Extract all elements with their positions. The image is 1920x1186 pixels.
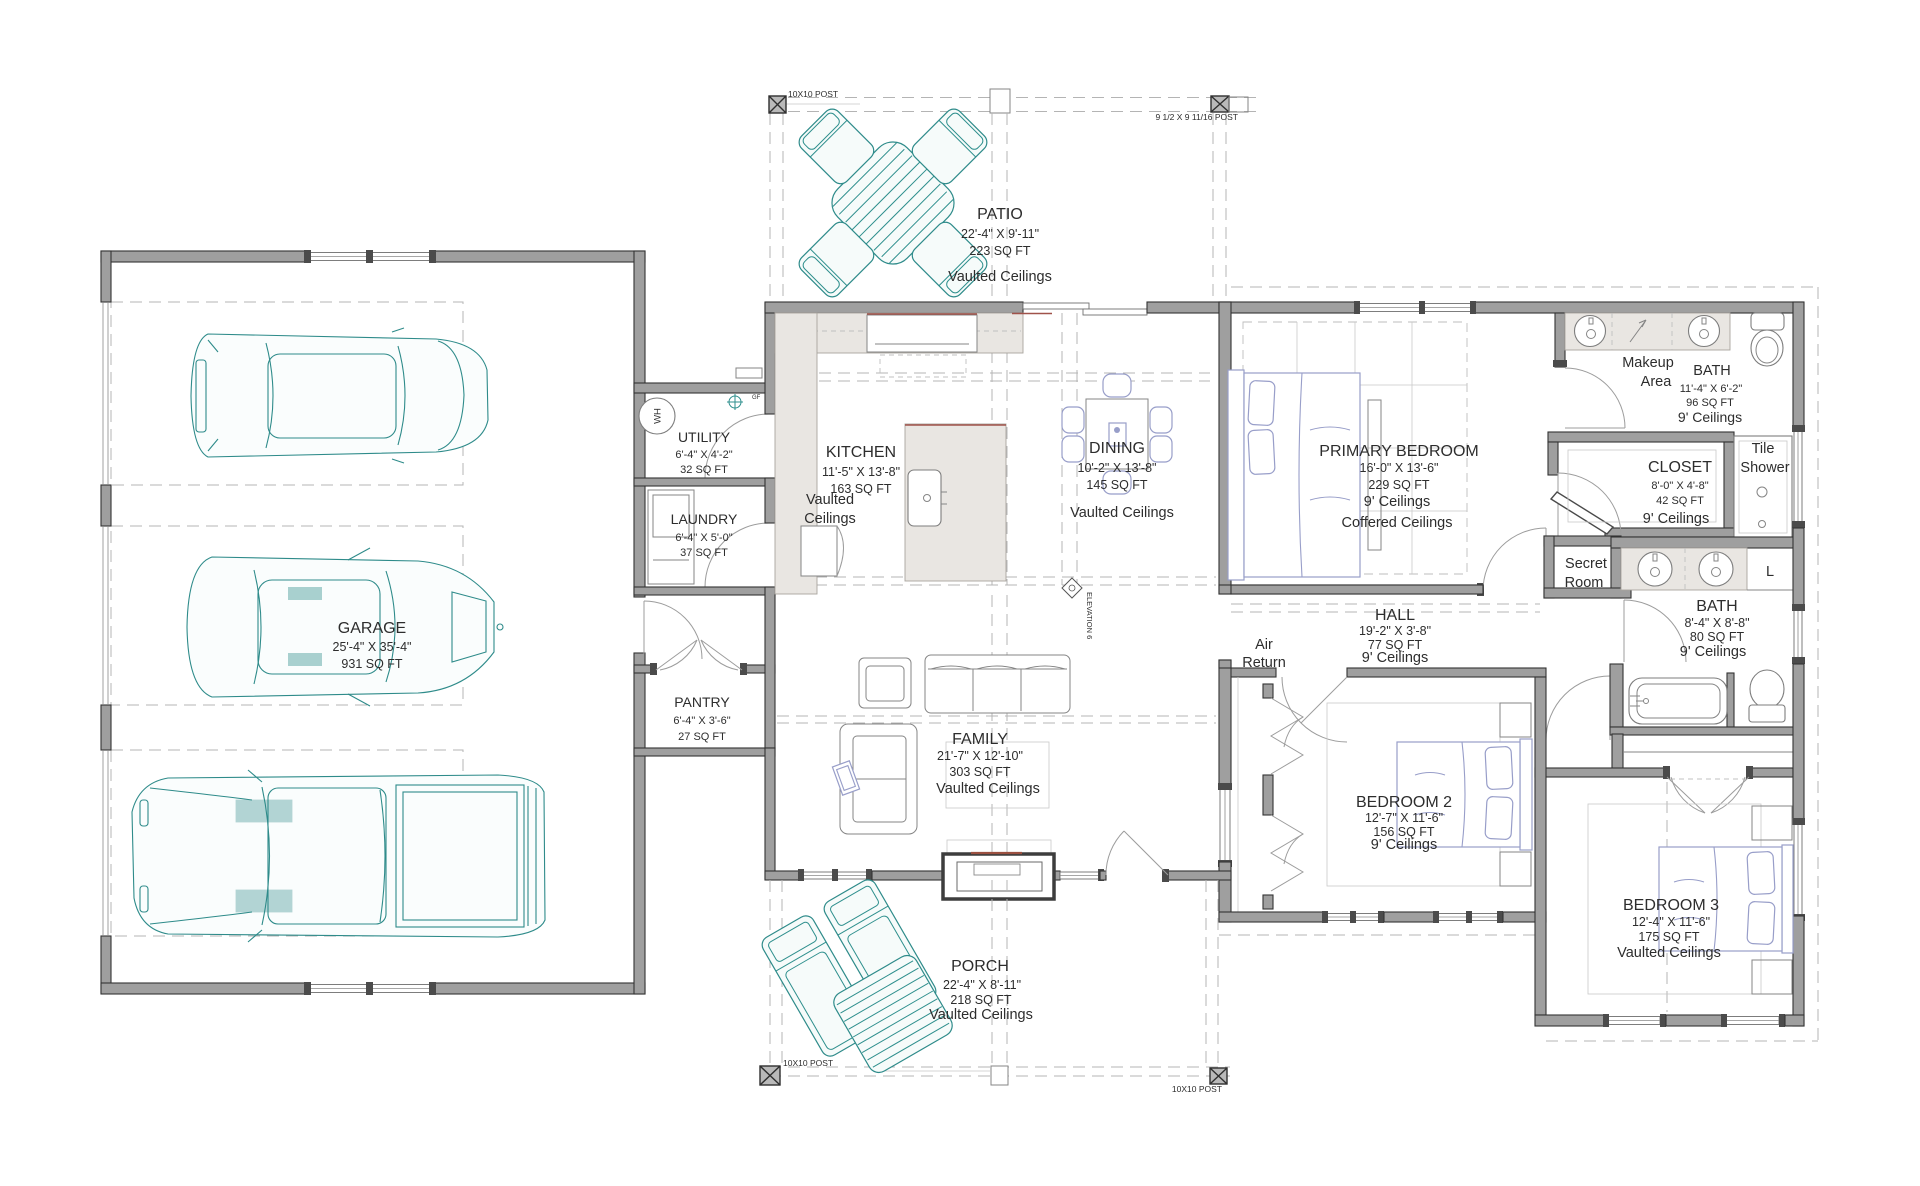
svg-text:DINING: DINING bbox=[1089, 440, 1145, 457]
svg-text:9' Ceilings: 9' Ceilings bbox=[1364, 494, 1430, 510]
svg-text:96 SQ FT: 96 SQ FT bbox=[1686, 397, 1734, 409]
svg-text:KITCHEN: KITCHEN bbox=[826, 444, 896, 461]
svg-text:Tile: Tile bbox=[1752, 441, 1775, 457]
svg-text:223 SQ FT: 223 SQ FT bbox=[969, 244, 1030, 258]
svg-text:GF: GF bbox=[752, 395, 761, 401]
svg-text:25'-4" X 35'-4": 25'-4" X 35'-4" bbox=[333, 640, 412, 654]
svg-text:Vaulted Ceilings: Vaulted Ceilings bbox=[936, 781, 1040, 797]
svg-text:Ceilings: Ceilings bbox=[804, 511, 856, 527]
svg-text:16'-0" X 13'-6": 16'-0" X 13'-6" bbox=[1360, 461, 1439, 475]
svg-text:PRIMARY BEDROOM: PRIMARY BEDROOM bbox=[1319, 443, 1478, 460]
svg-text:9' Ceilings: 9' Ceilings bbox=[1362, 650, 1428, 666]
svg-text:9' Ceilings: 9' Ceilings bbox=[1678, 409, 1742, 425]
svg-text:10X10 POST: 10X10 POST bbox=[1172, 1084, 1222, 1094]
svg-text:10X10 POST: 10X10 POST bbox=[783, 1058, 833, 1068]
svg-text:6'-4" X 5'-0": 6'-4" X 5'-0" bbox=[675, 532, 732, 544]
svg-text:ELEVATION 6: ELEVATION 6 bbox=[1085, 592, 1094, 639]
svg-text:12'-4" X 11'-6": 12'-4" X 11'-6" bbox=[1632, 915, 1710, 929]
svg-text:22'-4" X 8'-11": 22'-4" X 8'-11" bbox=[943, 978, 1021, 992]
svg-text:229 SQ FT: 229 SQ FT bbox=[1368, 478, 1429, 492]
svg-text:Area: Area bbox=[1641, 374, 1673, 390]
svg-text:145 SQ FT: 145 SQ FT bbox=[1086, 478, 1147, 492]
svg-text:GARAGE: GARAGE bbox=[338, 620, 406, 637]
svg-text:Vaulted Ceilings: Vaulted Ceilings bbox=[1617, 945, 1721, 961]
svg-text:Air: Air bbox=[1255, 637, 1273, 653]
svg-text:931 SQ FT: 931 SQ FT bbox=[341, 657, 402, 671]
svg-text:11'-5" X 13'-8": 11'-5" X 13'-8" bbox=[822, 465, 900, 479]
svg-text:42 SQ FT: 42 SQ FT bbox=[1656, 495, 1704, 507]
svg-text:6'-4" X 3'-6": 6'-4" X 3'-6" bbox=[673, 715, 730, 727]
svg-text:19'-2" X 3'-8": 19'-2" X 3'-8" bbox=[1359, 624, 1431, 638]
svg-text:303 SQ FT: 303 SQ FT bbox=[949, 765, 1010, 779]
svg-text:10X10 POST: 10X10 POST bbox=[788, 89, 838, 99]
svg-text:Coffered Ceilings: Coffered Ceilings bbox=[1342, 515, 1453, 531]
svg-text:PORCH: PORCH bbox=[951, 958, 1009, 975]
svg-text:21'-7" X 12'-10": 21'-7" X 12'-10" bbox=[937, 749, 1023, 763]
svg-text:PATIO: PATIO bbox=[977, 206, 1023, 223]
svg-text:Return: Return bbox=[1242, 655, 1286, 671]
svg-text:80 SQ FT: 80 SQ FT bbox=[1690, 630, 1745, 644]
svg-text:9' Ceilings: 9' Ceilings bbox=[1371, 837, 1437, 853]
svg-text:Room: Room bbox=[1565, 575, 1604, 591]
svg-text:Makeup: Makeup bbox=[1622, 355, 1674, 371]
svg-text:BATH: BATH bbox=[1693, 363, 1731, 379]
svg-text:Shower: Shower bbox=[1740, 460, 1789, 476]
svg-text:L: L bbox=[1766, 564, 1774, 580]
svg-text:27 SQ FT: 27 SQ FT bbox=[678, 731, 726, 743]
svg-text:Secret: Secret bbox=[1565, 556, 1607, 572]
svg-text:22'-4" X 9'-11": 22'-4" X 9'-11" bbox=[961, 227, 1039, 241]
svg-text:8'-4" X 8'-8": 8'-4" X 8'-8" bbox=[1684, 616, 1749, 630]
svg-text:218 SQ FT: 218 SQ FT bbox=[950, 993, 1011, 1007]
svg-text:UTILITY: UTILITY bbox=[678, 429, 731, 445]
svg-text:9' Ceilings: 9' Ceilings bbox=[1643, 511, 1709, 527]
svg-text:8'-0" X 4'-8": 8'-0" X 4'-8" bbox=[1651, 480, 1708, 492]
svg-text:Vaulted: Vaulted bbox=[806, 492, 854, 508]
svg-text:BATH: BATH bbox=[1696, 598, 1737, 615]
svg-text:9 1/2 X 9 11/16 POST: 9 1/2 X 9 11/16 POST bbox=[1155, 112, 1238, 122]
svg-text:9' Ceilings: 9' Ceilings bbox=[1680, 644, 1746, 660]
svg-text:LAUNDRY: LAUNDRY bbox=[671, 511, 738, 527]
svg-text:WH: WH bbox=[653, 408, 664, 424]
svg-text:HALL: HALL bbox=[1375, 607, 1415, 624]
svg-text:12'-7" X 11'-6": 12'-7" X 11'-6" bbox=[1365, 811, 1443, 825]
svg-text:BEDROOM 3: BEDROOM 3 bbox=[1623, 897, 1719, 914]
svg-text:175 SQ FT: 175 SQ FT bbox=[1638, 930, 1699, 944]
svg-text:Vaulted Ceilings: Vaulted Ceilings bbox=[948, 269, 1052, 285]
svg-text:10'-2" X 13'-8": 10'-2" X 13'-8" bbox=[1078, 461, 1157, 475]
svg-text:FAMILY: FAMILY bbox=[952, 731, 1008, 748]
svg-text:32 SQ FT: 32 SQ FT bbox=[680, 464, 728, 476]
svg-text:6'-4" X 4'-2": 6'-4" X 4'-2" bbox=[675, 449, 732, 461]
svg-text:BEDROOM 2: BEDROOM 2 bbox=[1356, 794, 1452, 811]
svg-text:PANTRY: PANTRY bbox=[674, 694, 730, 710]
svg-text:Vaulted Ceilings: Vaulted Ceilings bbox=[1070, 505, 1174, 521]
svg-text:CLOSET: CLOSET bbox=[1648, 459, 1712, 476]
svg-text:11'-4" X 6'-2": 11'-4" X 6'-2" bbox=[1680, 383, 1743, 395]
svg-text:37 SQ FT: 37 SQ FT bbox=[680, 547, 728, 559]
svg-text:Vaulted Ceilings: Vaulted Ceilings bbox=[929, 1007, 1033, 1023]
